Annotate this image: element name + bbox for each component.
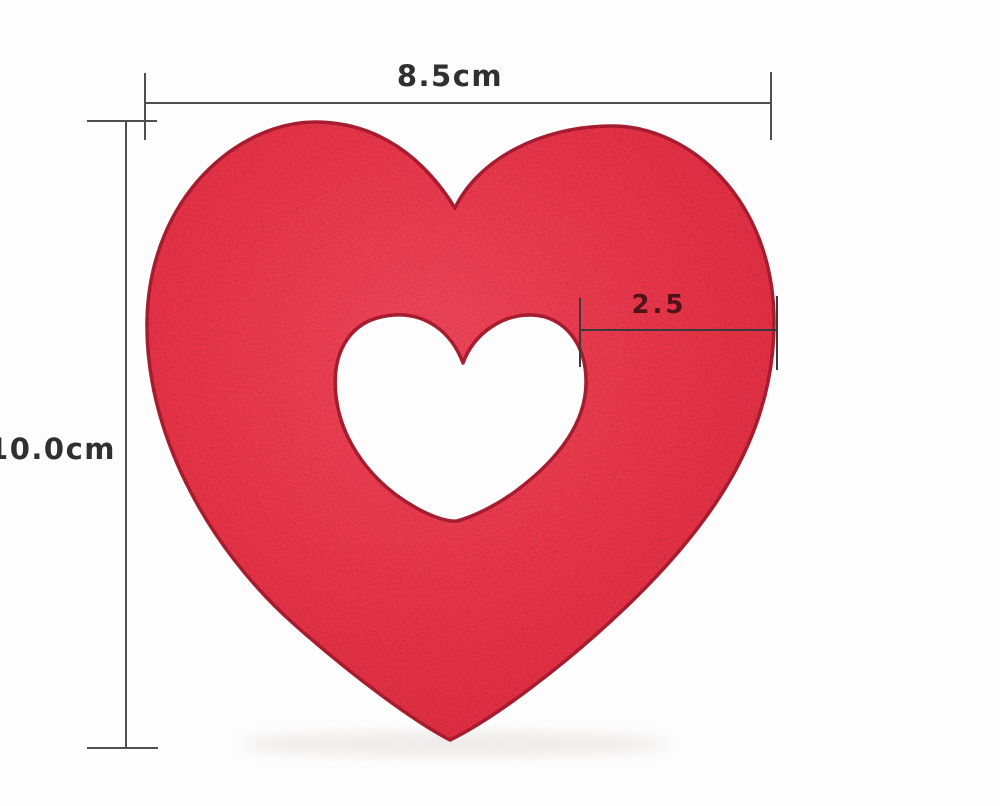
dimension-diagram: 8.5cm 10.0cm 2.5 xyxy=(0,0,1000,806)
height-dimension-label: 10.0cm xyxy=(0,432,116,466)
width-dimension-label: 8.5cm xyxy=(397,59,503,93)
hole-dimension-label: 2.5 xyxy=(631,290,686,320)
product-dimension-photo: 8.5cm 10.0cm 2.5 xyxy=(0,0,1000,806)
